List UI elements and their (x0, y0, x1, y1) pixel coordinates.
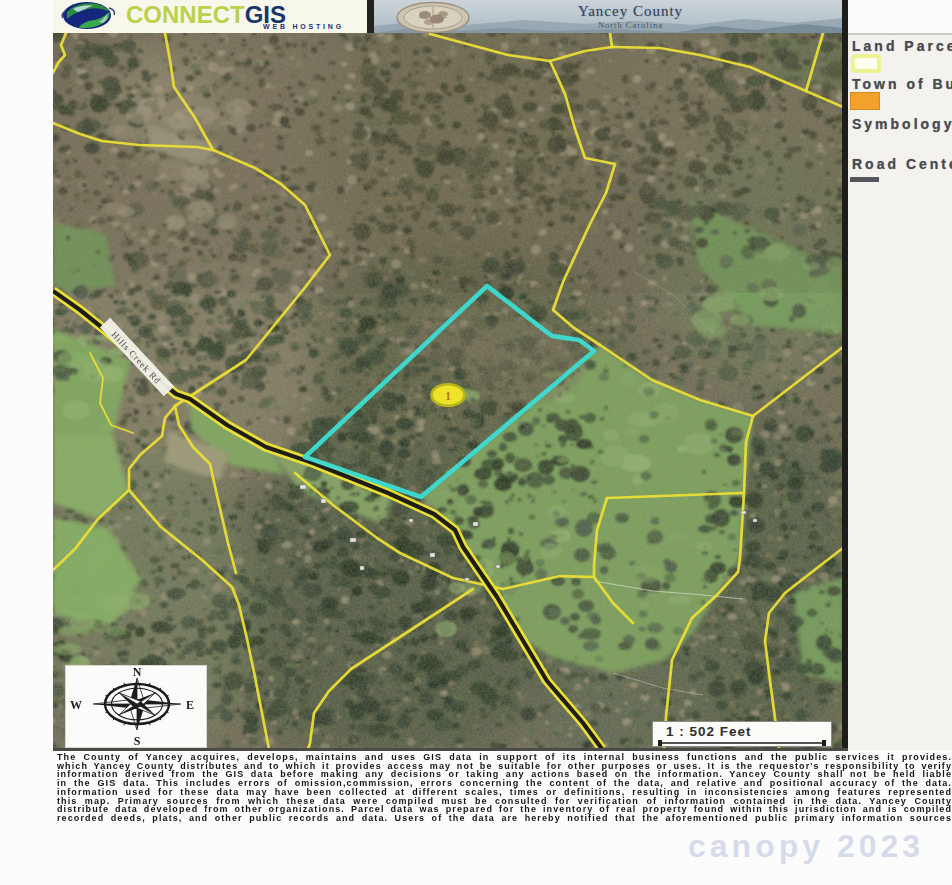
svg-text:N: N (133, 666, 142, 679)
svg-text:1: 1 (445, 389, 451, 403)
svg-text:W: W (70, 698, 82, 712)
svg-text:E: E (186, 698, 194, 712)
svg-text:S: S (134, 734, 141, 747)
